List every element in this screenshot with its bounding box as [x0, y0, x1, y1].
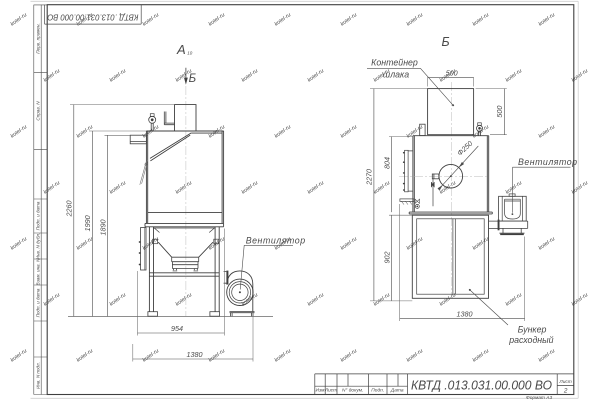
svg-text:10: 10 — [187, 51, 193, 56]
svg-text:2260: 2260 — [65, 201, 74, 218]
svg-text:Формат А3: Формат А3 — [526, 395, 553, 400]
svg-text:А: А — [176, 42, 186, 57]
svg-text:Лист: Лист — [324, 388, 337, 394]
svg-text:Б: Б — [189, 73, 197, 85]
svg-text:КВТД .013.031.00.000 ВО: КВТД .013.031.00.000 ВО — [411, 378, 552, 393]
svg-text:расходный: расходный — [508, 335, 553, 345]
svg-text:N° докум.: N° докум. — [342, 388, 363, 394]
svg-text:Подп. и дата: Подп. и дата — [35, 201, 40, 230]
svg-text:804: 804 — [383, 157, 392, 169]
svg-text:Вентилятор: Вентилятор — [518, 157, 578, 167]
svg-text:1380: 1380 — [187, 350, 203, 359]
svg-text:902: 902 — [383, 252, 392, 264]
svg-text:2270: 2270 — [365, 169, 374, 186]
svg-text:1990: 1990 — [83, 215, 92, 231]
svg-text:КВТД .013.031.00.000 ВО: КВТД .013.031.00.000 ВО — [47, 13, 138, 22]
svg-text:Перв. примен.: Перв. примен. — [35, 23, 40, 54]
svg-text:500: 500 — [495, 106, 504, 118]
svg-text:Инв. N подл.: Инв. N подл. — [35, 362, 40, 389]
svg-text:954: 954 — [171, 324, 183, 333]
svg-text:500: 500 — [446, 69, 458, 78]
svg-text:Лист: Лист — [558, 379, 571, 385]
svg-text:Б: Б — [442, 35, 450, 49]
svg-text:Инв. N дубл.: Инв. N дубл. — [35, 233, 40, 260]
svg-text:Дата: Дата — [390, 388, 404, 394]
svg-text:Вентилятор: Вентилятор — [246, 236, 306, 246]
svg-text:Бункер: Бункер — [518, 324, 547, 334]
svg-text:Изм: Изм — [316, 388, 326, 394]
svg-text:Справ. N: Справ. N — [35, 101, 40, 121]
svg-text:2: 2 — [563, 388, 568, 395]
svg-text:шлака: шлака — [383, 69, 409, 79]
svg-text:1380: 1380 — [457, 309, 473, 318]
svg-text:Подп.: Подп. — [371, 388, 384, 394]
svg-text:Контейнер: Контейнер — [371, 58, 418, 68]
svg-text:Подп. и дата: Подп. и дата — [35, 288, 40, 317]
svg-text:Взам. инв. N: Взам. инв. N — [35, 258, 40, 285]
svg-text:1890: 1890 — [98, 220, 107, 236]
